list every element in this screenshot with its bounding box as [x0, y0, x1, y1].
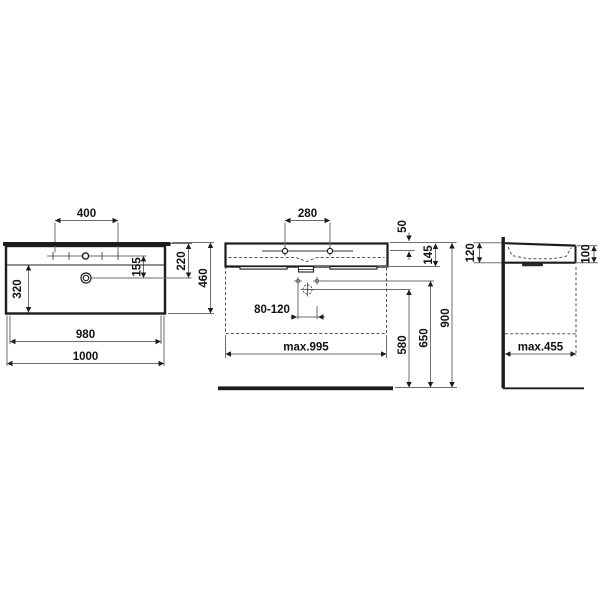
technical-drawing-page: 400 155 220 460 320 980 1000 [0, 0, 600, 600]
dim-100-label: 100 [581, 244, 593, 263]
dim-280-label: 280 [298, 208, 317, 220]
side-view: 120 100 max.455 [465, 237, 598, 388]
back-mounting-edge [3, 242, 171, 246]
drain-hole-inner [83, 275, 88, 280]
plan-view: 400 155 220 460 320 980 1000 [3, 208, 214, 366]
dim-580-label: 580 [397, 335, 409, 354]
dim-max995-label: max.995 [283, 342, 329, 354]
dim-155-label: 155 [132, 257, 144, 277]
dim-220-label: 220 [176, 251, 188, 270]
drain-fitting-side [522, 263, 543, 266]
mounting-pad-left [240, 267, 287, 270]
dim-80-120-label: 80-120 [254, 304, 290, 316]
dim-145-label: 145 [423, 245, 435, 265]
faucet-hole-left [282, 248, 287, 253]
dim-50-label: 50 [397, 220, 409, 233]
dim-120-label: 120 [465, 243, 477, 262]
bowl-profile-hidden-line [508, 247, 572, 259]
dim-980-label: 980 [76, 329, 95, 341]
drain-connection-mark [301, 283, 315, 297]
dim-650-label: 650 [419, 328, 431, 347]
dim-460-label: 460 [198, 268, 210, 287]
dim-1000-label: 1000 [73, 351, 99, 363]
floor-line-front [218, 386, 393, 390]
faucet-hole-right [327, 248, 332, 253]
basin-top-side [505, 243, 576, 245]
center-faucet-hole [82, 253, 88, 259]
mounting-pad-right [330, 267, 377, 270]
cabinet-clearance-front [226, 268, 387, 334]
dim-320-label: 320 [12, 279, 24, 298]
dim-400-label: 400 [77, 208, 96, 220]
dim-max455-label: max.455 [518, 342, 564, 354]
dim-900-label: 900 [440, 308, 452, 327]
front-view: 280 50 145 80-120 max.995 580 650 900 [218, 208, 457, 390]
washbasin-drawing: 400 155 220 460 320 980 1000 [0, 0, 600, 600]
basin-outline-front [226, 244, 388, 267]
bowl-bottom-hidden-line [229, 258, 385, 262]
